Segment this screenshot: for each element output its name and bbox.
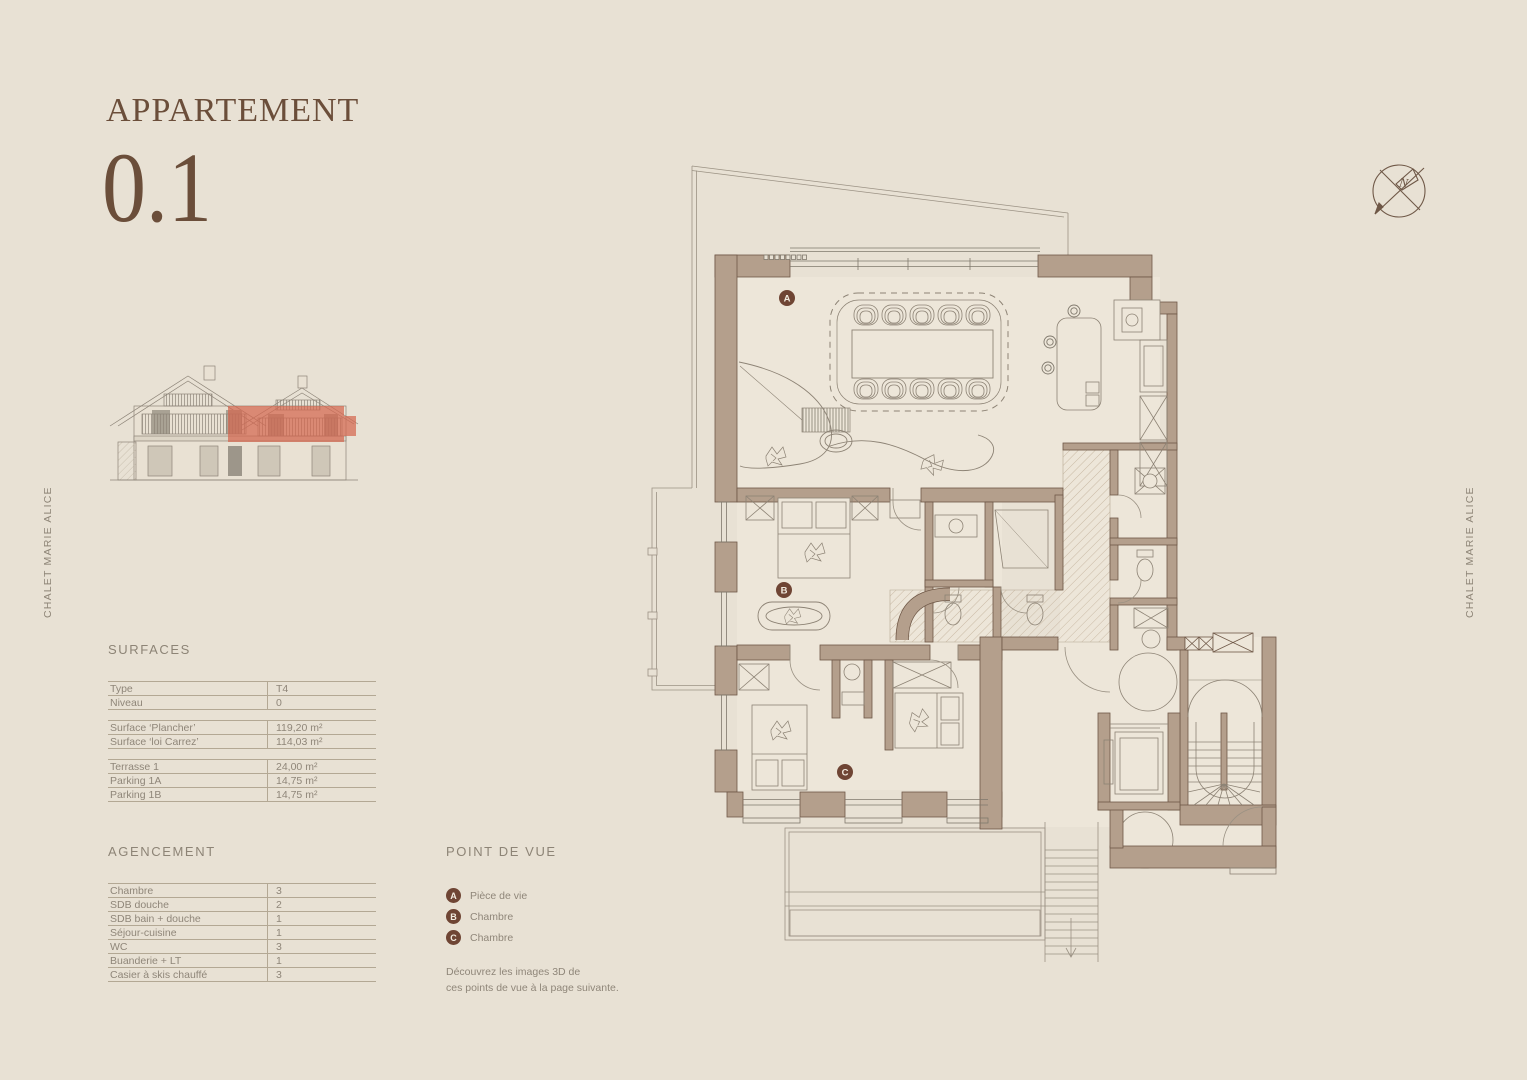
svg-text:C: C — [842, 768, 849, 779]
agencement-table: Chambre3 SDB douche2 SDB bain + douche1 … — [108, 883, 376, 982]
table-spacer-row — [108, 710, 376, 721]
brochure-page: { "page": { "background": "#e8e1d4", "ac… — [0, 0, 1527, 1080]
table-row: Séjour-cuisine1 — [108, 926, 376, 940]
viewpoint-b-badge: B — [446, 909, 461, 924]
unit-highlight — [228, 406, 356, 442]
apartment-number: 0.1 — [102, 138, 212, 238]
lower-terrace — [785, 828, 1045, 940]
table-row: TypeT4 — [108, 682, 376, 696]
table-row: Parking 1A14,75 m² — [108, 774, 376, 788]
surfaces-table: TypeT4 Niveau0 Surface ‘Plancher’119,20 … — [108, 681, 376, 802]
dining-table — [852, 330, 993, 378]
porch-railing — [1230, 868, 1276, 874]
viewpoint-c-badge: C — [446, 930, 461, 945]
media-sideboard — [802, 408, 850, 432]
table-row: SDB bain + douche1 — [108, 912, 376, 926]
agencement-panel: AGENCEMENT Chambre3 SDB douche2 SDB bain… — [108, 844, 376, 982]
floor-plan: A B C — [640, 150, 1300, 970]
viewpoint-a-badge: A — [446, 888, 461, 903]
table-row: Casier à skis chauffé3 — [108, 968, 376, 982]
chalet-name-right: CHALET MARIE ALICE — [1464, 462, 1484, 642]
building-elevation-drawing — [108, 350, 360, 490]
svg-text:A: A — [784, 294, 791, 305]
table-row: Surface ‘Plancher’119,20 m² — [108, 721, 376, 735]
table-row: Chambre3 — [108, 884, 376, 898]
exterior-staircase — [1045, 822, 1098, 962]
page-title: APPARTEMENT — [106, 92, 359, 130]
agencement-heading: AGENCEMENT — [108, 844, 376, 859]
surfaces-panel: SURFACES TypeT4 Niveau0 Surface ‘Planche… — [108, 642, 376, 802]
north-compass-icon: N — [1366, 158, 1432, 224]
table-row: Parking 1B14,75 m² — [108, 788, 376, 802]
chalet-name-left: CHALET MARIE ALICE — [42, 462, 62, 642]
table-row: SDB douche2 — [108, 898, 376, 912]
table-row: Buanderie + LT1 — [108, 954, 376, 968]
table-row: Niveau0 — [108, 696, 376, 710]
table-row: WC3 — [108, 940, 376, 954]
table-row: Surface ‘loi Carrez’114,03 m² — [108, 735, 376, 749]
kitchen-island — [1057, 318, 1101, 410]
table-row: Terrasse 124,00 m² — [108, 760, 376, 774]
ski-lockers — [1185, 633, 1253, 652]
surfaces-heading: SURFACES — [108, 642, 376, 657]
bathtub — [758, 602, 830, 630]
svg-text:B: B — [781, 586, 788, 597]
table-spacer-row — [108, 749, 376, 760]
